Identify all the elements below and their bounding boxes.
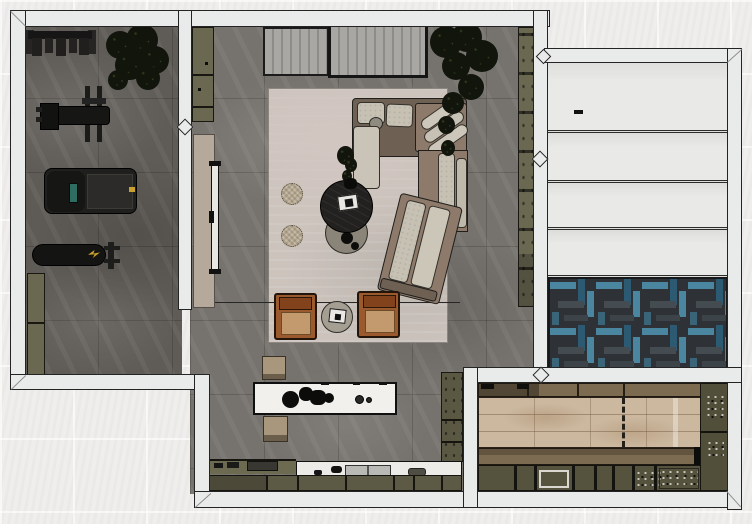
kitchen-base-cabinets	[207, 475, 462, 491]
floor-plan-viewport[interactable]	[0, 0, 752, 524]
stair-hall-floor	[546, 61, 729, 278]
wall-utility-top	[463, 367, 742, 383]
island-burner	[366, 397, 372, 403]
counter-hob	[207, 459, 296, 474]
pouf	[281, 183, 303, 205]
tall-cabinet-top	[192, 27, 214, 122]
stair-tread	[548, 183, 727, 230]
island	[253, 382, 397, 415]
wall-divider-gym	[178, 10, 192, 310]
shelf-right	[518, 27, 534, 307]
book-on-table	[337, 194, 359, 212]
dashed-centerline	[622, 398, 625, 447]
island-bowl	[282, 391, 299, 408]
dumbbell-rack	[26, 28, 96, 60]
wall-divider-stairs	[533, 10, 548, 370]
wall-gym-bottom	[10, 374, 210, 390]
wood-platform	[478, 383, 702, 465]
stool	[262, 356, 286, 380]
stair-tread	[548, 230, 727, 278]
exercise-bench	[30, 242, 122, 269]
leather-armchair	[274, 293, 317, 340]
wall-top	[10, 10, 550, 27]
pouf	[281, 225, 303, 247]
table-decor-black	[351, 242, 359, 250]
wall-left-lower	[194, 374, 210, 508]
treadmill	[44, 168, 137, 214]
stair-mark	[574, 110, 583, 114]
wood-top-band	[478, 383, 702, 397]
wall-kitchen-right	[463, 367, 478, 508]
gym-cabinet	[27, 273, 45, 375]
wood-deck	[478, 397, 702, 448]
stair-tread	[548, 61, 727, 133]
utility-sink	[539, 470, 569, 488]
faucet	[331, 466, 342, 473]
sofa-chaise-cushion	[353, 126, 380, 189]
stool	[263, 416, 288, 442]
slat-panel-sliding	[328, 22, 428, 78]
utility-cabinets	[478, 465, 702, 491]
wall-left-outer	[10, 10, 26, 390]
island-burner	[355, 395, 364, 404]
herringbone-carpet	[548, 277, 728, 369]
kitchen-tall-cabinet	[441, 372, 463, 462]
wall-top-right	[544, 48, 742, 63]
stair-tread	[548, 133, 727, 183]
wall-right-outer	[727, 48, 742, 510]
wood-bottom-band	[478, 448, 702, 465]
tv	[211, 162, 219, 272]
book-on-side-table	[328, 308, 346, 324]
slat-panel-fixed	[263, 27, 329, 76]
leather-armchair	[357, 291, 400, 338]
utility-column	[700, 383, 728, 491]
weight-machine	[38, 84, 118, 144]
sofa-back-cushion	[386, 104, 414, 128]
